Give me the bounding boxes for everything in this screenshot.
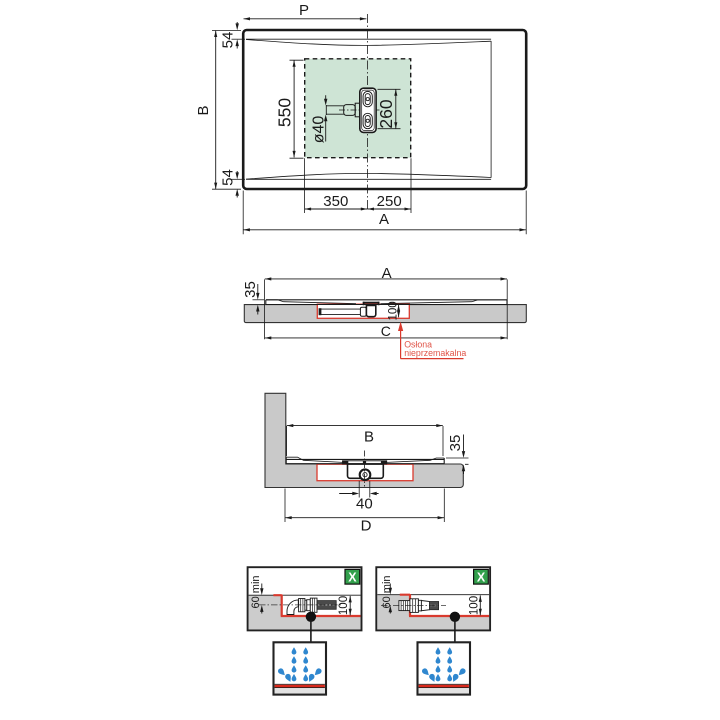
svg-text:100: 100 — [469, 596, 481, 615]
svg-text:60 min: 60 min — [381, 575, 393, 608]
svg-text:A: A — [379, 211, 389, 228]
svg-text:X: X — [477, 571, 486, 585]
svg-text:350: 350 — [323, 193, 348, 210]
svg-text:C: C — [381, 323, 391, 339]
svg-text:P: P — [299, 2, 309, 19]
svg-text:D: D — [361, 517, 372, 534]
svg-text:ø40: ø40 — [311, 116, 328, 144]
svg-text:A: A — [382, 265, 392, 282]
svg-text:54: 54 — [220, 169, 237, 186]
svg-text:35: 35 — [242, 281, 259, 298]
svg-text:B: B — [364, 428, 374, 445]
svg-text:B: B — [195, 105, 212, 115]
svg-text:40: 40 — [356, 496, 373, 513]
svg-text:60 min: 60 min — [250, 575, 262, 608]
svg-text:550: 550 — [275, 98, 295, 127]
svg-text:35: 35 — [447, 435, 464, 452]
svg-text:250: 250 — [377, 193, 402, 210]
svg-text:260: 260 — [376, 99, 396, 128]
svg-text:54: 54 — [220, 32, 237, 49]
svg-text:X: X — [348, 571, 357, 585]
svg-text:100: 100 — [387, 301, 399, 320]
svg-text:nieprzemakalna: nieprzemakalna — [404, 348, 466, 358]
svg-text:100: 100 — [338, 596, 350, 615]
